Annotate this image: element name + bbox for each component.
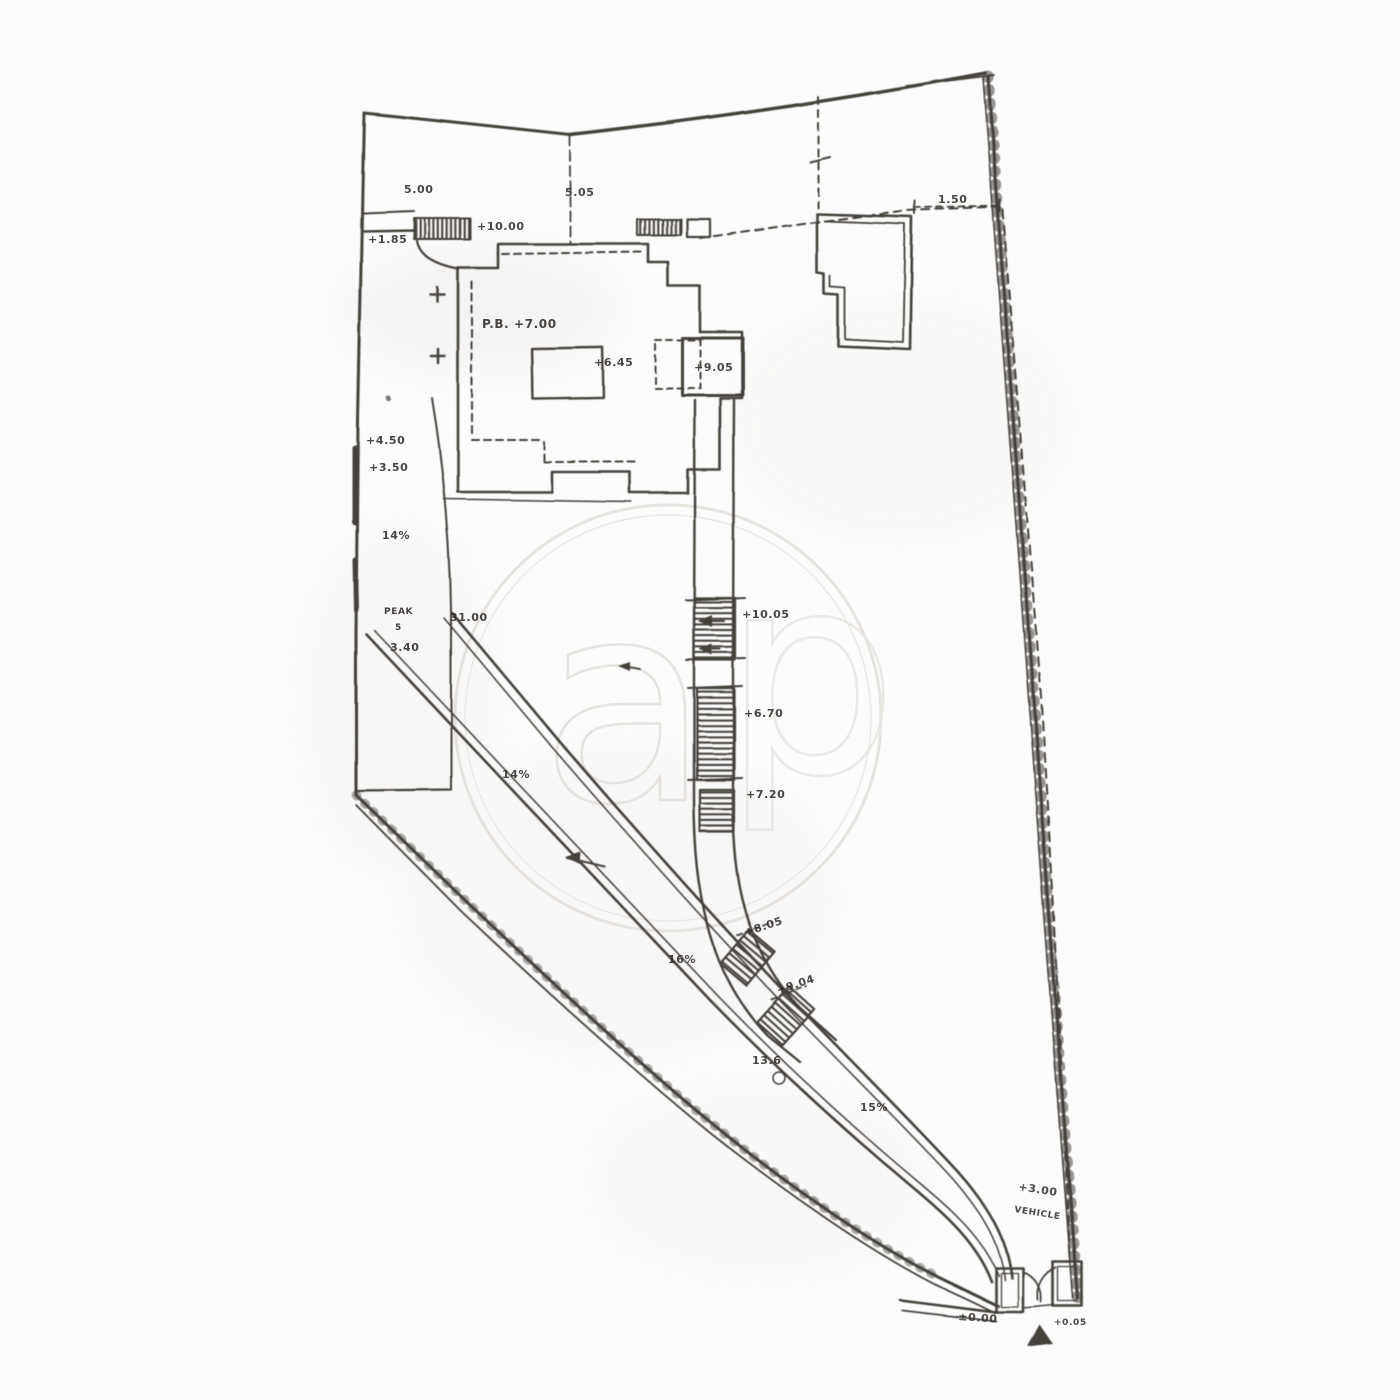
stairs-hatch-topcenter [637, 219, 681, 235]
elevation-label: +0.05 [1054, 1318, 1087, 1328]
slope-label: 14% [382, 529, 410, 542]
site-plan-scan: a p [0, 0, 1400, 1400]
note-label: PEAK [384, 607, 414, 617]
elevation-label: +4.50 [366, 434, 405, 447]
note-label: 5 [395, 623, 402, 633]
annex-level-label: +9.05 [694, 361, 733, 374]
dim-line-topleft-b [364, 230, 414, 231]
stair-level-label: +10.05 [742, 608, 790, 621]
elevation-label: +1.85 [368, 233, 407, 246]
stair-level-label: +7.20 [746, 788, 785, 801]
yard-bottom-line [357, 790, 451, 791]
stair-flight-2 [697, 688, 734, 780]
slope-label: 14% [502, 768, 530, 781]
house-level-label: P.B. +7.00 [482, 317, 557, 331]
survey-dot [386, 396, 391, 401]
stair-flight-1 [694, 598, 735, 660]
slope-label: 16% [668, 953, 696, 966]
elevation-label: +6.45 [594, 356, 633, 369]
stair-flight-3 [700, 790, 734, 832]
dimension-label: 3.40 [390, 641, 420, 654]
dimension-label: 13.6 [752, 1054, 782, 1067]
dimension-label: 5.05 [565, 186, 595, 199]
boundary-left-dark-segment-2 [355, 560, 356, 610]
slope-label: 15% [860, 1101, 888, 1114]
dimension-label: 5.00 [404, 183, 434, 196]
stairs-hatch-topleft [414, 218, 470, 239]
site-plan-drawing: a p [0, 0, 1400, 1400]
elevation-label: +3.50 [369, 461, 408, 474]
stair-level-label: +6.70 [744, 707, 783, 720]
dimension-label: 1.50 [938, 193, 968, 206]
datum-label: ±0.00 [958, 1310, 998, 1326]
elevation-label: +10.00 [477, 220, 525, 233]
dimension-label: 31.00 [450, 611, 488, 624]
